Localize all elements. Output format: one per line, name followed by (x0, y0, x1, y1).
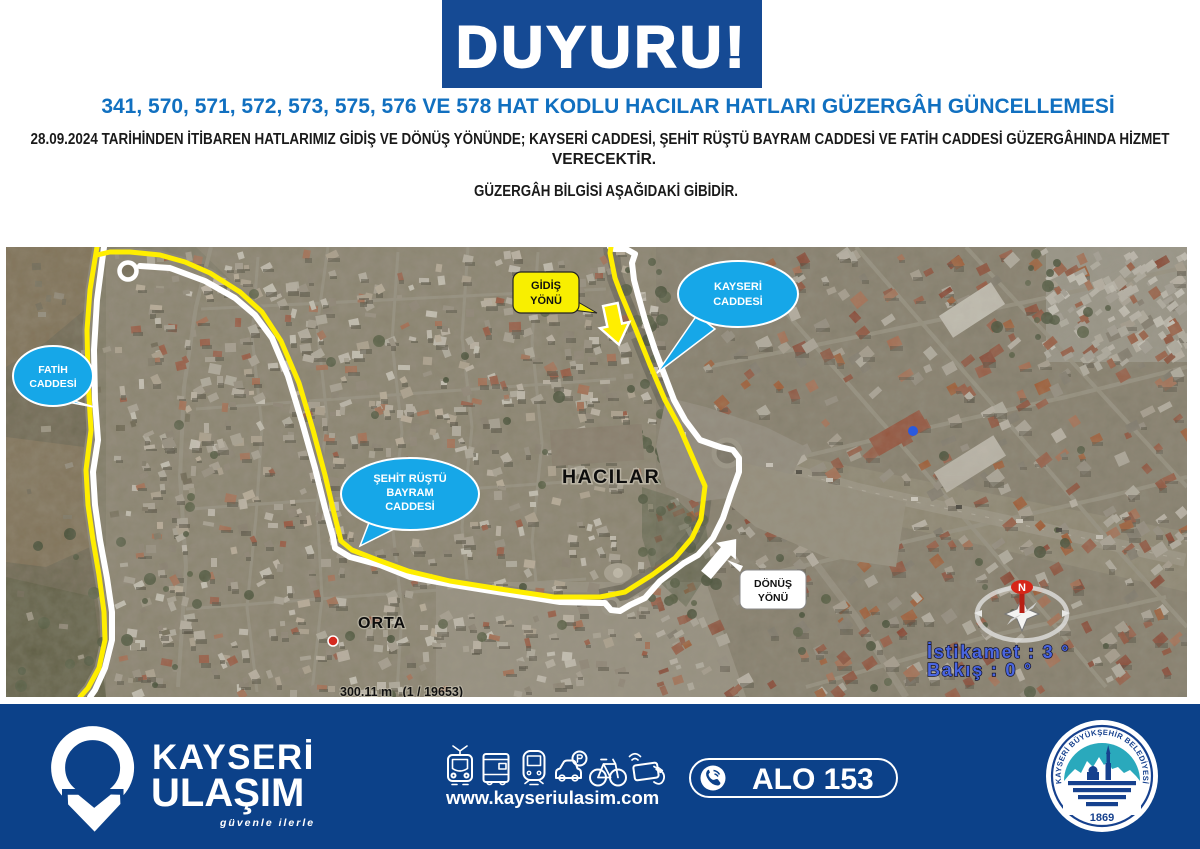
svg-text:ULAŞIM: ULAŞIM (151, 771, 304, 815)
svg-text:GİDİŞ: GİDİŞ (531, 279, 561, 292)
svg-text:güvenle ilerle: güvenle ilerle (219, 817, 315, 829)
svg-text:ŞEHİT RÜŞTÜ: ŞEHİT RÜŞTÜ (373, 472, 446, 485)
svg-text:1869: 1869 (1090, 812, 1114, 824)
svg-text:CADDESİ: CADDESİ (29, 377, 76, 390)
svg-text:İstikamet : 3 °: İstikamet : 3 ° (927, 642, 1070, 662)
svg-text:HACILAR: HACILAR (562, 466, 660, 488)
svg-text:www.kayseriulasim.com: www.kayseriulasim.com (445, 787, 659, 808)
svg-text:BAYRAM: BAYRAM (386, 487, 433, 499)
svg-text:300.11 m (1 / 19653): 300.11 m (1 / 19653) (340, 685, 463, 697)
svg-text:YÖNÜ: YÖNÜ (758, 591, 788, 604)
svg-text:CADDESİ: CADDESİ (713, 295, 763, 308)
svg-text:N: N (1018, 582, 1026, 594)
svg-text:Bakış : 0 °: Bakış : 0 ° (927, 660, 1033, 680)
svg-text:ALO 153: ALO 153 (752, 763, 874, 796)
svg-text:ORTA: ORTA (358, 615, 406, 632)
svg-text:DÖNÜŞ: DÖNÜŞ (754, 577, 792, 590)
svg-text:KAYSERİ: KAYSERİ (714, 280, 762, 293)
svg-text:YÖNÜ: YÖNÜ (530, 294, 562, 307)
svg-text:CADDESİ: CADDESİ (385, 500, 435, 513)
svg-text:FATİH: FATİH (38, 363, 68, 376)
